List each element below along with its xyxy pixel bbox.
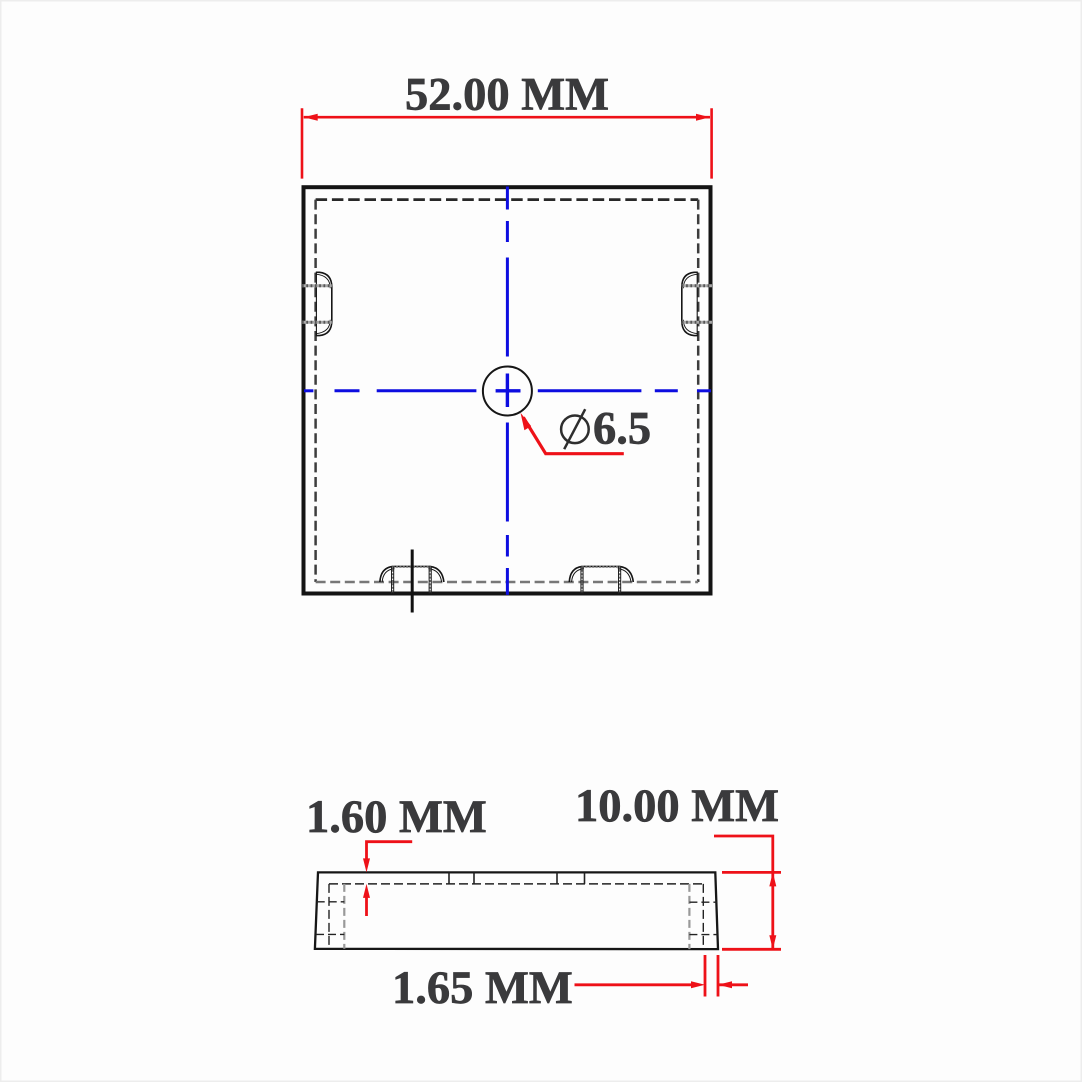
svg-text:52.00 MM: 52.00 MM — [405, 70, 609, 121]
svg-text:1.60 MM: 1.60 MM — [306, 792, 487, 843]
svg-text:1.65 MM: 1.65 MM — [392, 963, 573, 1014]
svg-text:6.5: 6.5 — [593, 404, 651, 455]
svg-text:10.00 MM: 10.00 MM — [575, 781, 779, 832]
